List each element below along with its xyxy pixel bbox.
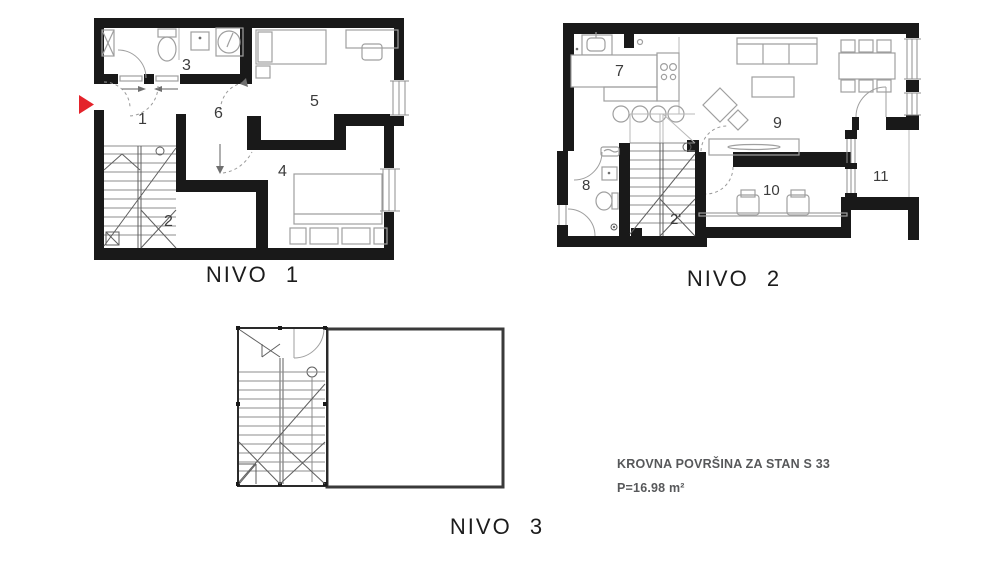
toilet-icon xyxy=(596,192,612,210)
room-label-10: 10 xyxy=(763,182,780,199)
room-label-1: 1 xyxy=(138,111,147,128)
stairs-nivo1 xyxy=(104,146,176,248)
room5-door-arc xyxy=(220,82,246,110)
coffee-table-icon xyxy=(752,77,794,97)
room-label-5: 5 xyxy=(310,93,319,110)
roof-area-title: KROVNA POVRŠINA ZA STAN S 33 xyxy=(617,457,830,471)
entrance-door-arc xyxy=(104,82,130,108)
floor-plan-nivo1: 1 2 3 4 5 6 xyxy=(94,18,410,262)
room4-door xyxy=(216,144,252,174)
bath8-door-arc xyxy=(574,152,602,180)
bed-double-icon xyxy=(290,174,387,244)
kitchen-glyph xyxy=(638,40,643,45)
bath8-lower-door-arc xyxy=(568,209,595,236)
bathroom-door-arc xyxy=(118,50,146,78)
room10-door-arc xyxy=(706,167,733,194)
window-room4 xyxy=(380,168,400,212)
room-label-2p: 2' xyxy=(670,211,681,228)
nivo2-label: NIVO 2 xyxy=(639,266,829,292)
armchair-icon xyxy=(703,88,748,130)
room-label-11: 11 xyxy=(873,168,889,185)
bed-single-icon xyxy=(256,30,326,78)
toilet-icon xyxy=(158,29,176,61)
kitchen-sink-icon xyxy=(576,32,612,55)
bath8-fixtures xyxy=(596,147,619,230)
floor-plan-sheet: 1 2 3 4 5 6 NIVO 1 xyxy=(0,0,1000,562)
boiler-icon xyxy=(216,28,243,56)
dining-table-icon xyxy=(839,40,895,92)
roof-terrace-outline xyxy=(327,329,503,487)
room-label-8: 8 xyxy=(582,177,590,194)
stove-icon xyxy=(657,53,679,101)
floor-plan-nivo3 xyxy=(236,324,508,494)
stairs-nivo2 xyxy=(630,114,695,236)
room-label-4: 4 xyxy=(278,163,287,180)
room-label-7: 7 xyxy=(615,63,624,80)
window-room9-a xyxy=(904,39,921,79)
nivo1-label: NIVO 1 xyxy=(158,262,348,288)
sink-icon xyxy=(191,32,209,50)
roof-area-value: P=16.98 m² xyxy=(617,481,685,495)
room-label-9: 9 xyxy=(773,115,782,132)
sofa-icon xyxy=(737,38,817,64)
desk-chair-icon xyxy=(346,30,398,60)
nivo3-label: NIVO 3 xyxy=(402,514,592,540)
niche-room8 xyxy=(559,205,566,225)
entrance-arrow-icon xyxy=(79,95,96,115)
floor-plan-nivo2: 7 8 9 10 2' 11 xyxy=(557,19,929,251)
room-label-2: 2 xyxy=(164,213,173,230)
room-label-3: 3 xyxy=(182,57,191,74)
window-room5 xyxy=(390,80,410,116)
room-label-6: 6 xyxy=(214,105,223,122)
window-room9-b xyxy=(904,93,921,115)
